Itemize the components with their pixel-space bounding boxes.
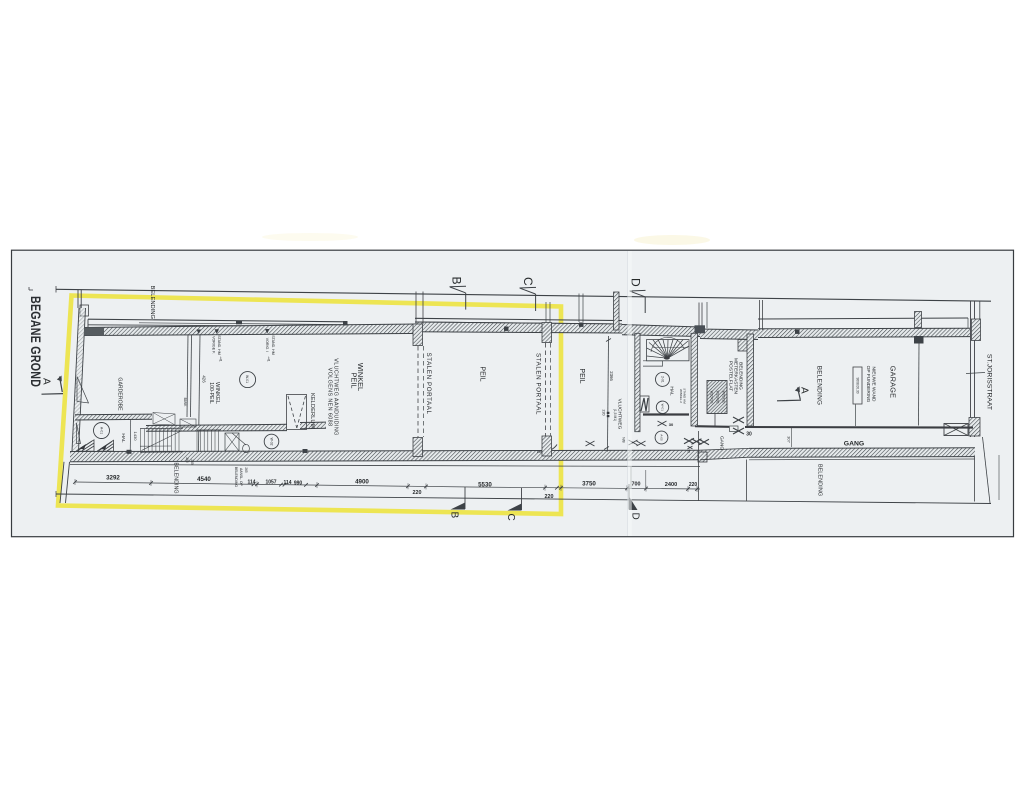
svg-text:1430: 1430: [133, 432, 138, 442]
svg-text:C: C: [505, 514, 516, 521]
svg-text:PEIL: PEIL: [349, 372, 358, 388]
svg-text:ST.JORISSTRAAT: ST.JORISSTRAAT: [986, 354, 993, 410]
svg-text:W20X30: W20X30: [715, 391, 719, 404]
svg-text:307: 307: [787, 436, 792, 443]
svg-text:STAND. HM: STAND. HM: [217, 335, 221, 355]
svg-text:220: 220: [545, 494, 554, 500]
svg-text:VORIGE F.: VORIGE F.: [212, 336, 216, 354]
svg-text:STAND. HM: STAND. HM: [271, 335, 275, 355]
svg-text:+41: +41: [266, 356, 270, 362]
svg-text:220: 220: [689, 482, 698, 488]
svg-text:KELDERLUIK: KELDERLUIK: [309, 393, 315, 429]
svg-text:STALEN PORTAAL: STALEN PORTAAL: [534, 353, 541, 415]
svg-text:OP FUNDERING: OP FUNDERING: [865, 366, 871, 403]
svg-text:BELENDING: BELENDING: [234, 467, 238, 488]
svg-text:3292: 3292: [106, 475, 120, 482]
svg-text:+41: +41: [218, 356, 222, 362]
svg-text:2366: 2366: [609, 371, 614, 381]
svg-text:C: C: [521, 277, 535, 286]
svg-text:GANG: GANG: [718, 436, 724, 450]
svg-text:W20X30: W20X30: [721, 391, 725, 404]
svg-text:A-00: A-00: [659, 434, 663, 441]
svg-text:B: B: [450, 277, 464, 285]
svg-text:426: 426: [201, 375, 206, 383]
svg-text:BELENDING: BELENDING: [816, 366, 823, 406]
svg-text:W-01: W-01: [245, 375, 249, 383]
svg-text:4540: 4540: [197, 476, 211, 483]
svg-text:265: 265: [185, 457, 189, 463]
svg-text:5530: 5530: [478, 482, 492, 489]
svg-text:BELENDING: BELENDING: [816, 464, 822, 496]
svg-text:114: 114: [283, 480, 291, 486]
svg-text:220: 220: [413, 490, 422, 496]
svg-text:30: 30: [686, 449, 690, 453]
svg-text:30: 30: [746, 432, 752, 438]
svg-text:BELENDING: BELENDING: [173, 462, 179, 493]
svg-text:PEIL: PEIL: [578, 368, 585, 383]
svg-text:N/B: N/B: [621, 437, 625, 443]
svg-text:W-01: W-01: [660, 404, 664, 412]
svg-text:3750: 3750: [582, 480, 596, 487]
svg-text:990: 990: [294, 480, 303, 486]
svg-text:WINKEL 2: WINKEL 2: [679, 389, 683, 403]
svg-text:W20X30: W20X30: [709, 391, 713, 404]
svg-text:100-PEIL: 100-PEIL: [208, 382, 214, 404]
svg-text:A: A: [799, 387, 810, 394]
svg-text:B: B: [449, 512, 460, 519]
svg-text:1057: 1057: [265, 480, 276, 486]
svg-text:2400: 2400: [665, 482, 677, 488]
svg-text:A-01: A-01: [99, 427, 103, 434]
svg-text:265: 265: [190, 459, 194, 465]
svg-text:BELENDING: BELENDING: [149, 286, 155, 320]
svg-text:30: 30: [669, 422, 674, 427]
svg-text:114: 114: [247, 479, 255, 485]
svg-text:NIEUWE WAND: NIEUWE WAND: [870, 367, 876, 403]
svg-text:VOLGENS NEN 6088: VOLGENS NEN 6088: [327, 368, 333, 427]
svg-text:W-02: W-02: [269, 438, 273, 446]
svg-text:VORIG. I: VORIG. I: [265, 338, 269, 353]
svg-text:4900: 4900: [355, 479, 369, 486]
svg-text:HAL: HAL: [120, 433, 126, 443]
svg-text:HAL: HAL: [668, 386, 674, 396]
svg-text:220: 220: [602, 409, 606, 415]
svg-text:(1,5 M1): (1,5 M1): [613, 409, 617, 422]
svg-text:700: 700: [632, 481, 641, 487]
svg-text:STALEN PORTAAL: STALEN PORTAAL: [425, 352, 432, 414]
svg-text:BANK: BANK: [183, 398, 187, 408]
svg-text:PEIL: PEIL: [478, 366, 485, 381]
svg-text:GARAGE: GARAGE: [888, 366, 897, 399]
svg-text:2-01: 2-01: [660, 376, 664, 383]
svg-text:AANSL. OP: AANSL. OP: [239, 468, 243, 487]
svg-text:BEGANE GROND: BEGANE GROND: [27, 296, 43, 387]
svg-text:GANG: GANG: [844, 441, 864, 448]
svg-text:265: 265: [244, 467, 248, 473]
svg-text:9608.00.30: 9608.00.30: [855, 378, 859, 394]
svg-text:GARDEROBE: GARDEROBE: [117, 377, 123, 411]
svg-text:POSTELFLAT: POSTELFLAT: [728, 361, 734, 391]
